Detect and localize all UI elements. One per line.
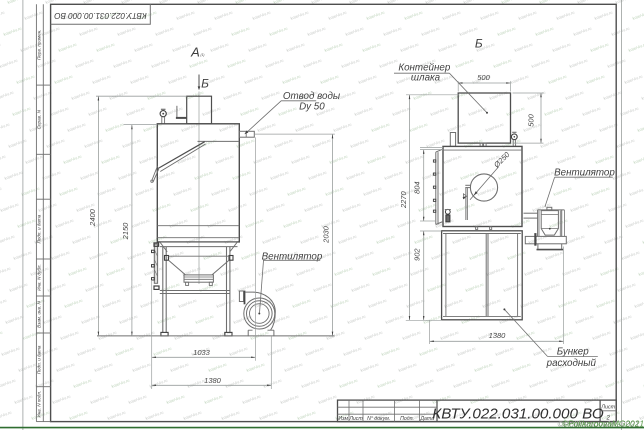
svg-text:шлака: шлака bbox=[411, 73, 441, 84]
svg-text:Справ. N: Справ. N bbox=[37, 109, 42, 129]
svg-text:Подп. и дата: Подп. и дата bbox=[37, 214, 42, 243]
svg-text:2030: 2030 bbox=[322, 225, 331, 244]
svg-text:Взам. инв. N: Взам. инв. N bbox=[37, 300, 42, 327]
svg-text:Бункер: Бункер bbox=[557, 347, 590, 358]
svg-text:Инв. N дубл.: Инв. N дубл. bbox=[37, 264, 42, 291]
svg-text:902: 902 bbox=[413, 248, 422, 261]
svg-text:©PolikarpovaMG2021: ©PolikarpovaMG2021 bbox=[562, 418, 644, 428]
svg-text:500: 500 bbox=[477, 73, 490, 82]
svg-text:Б: Б bbox=[475, 37, 483, 51]
svg-text:Dy 50: Dy 50 bbox=[299, 102, 325, 113]
svg-text:N° докум.: N° докум. bbox=[367, 416, 390, 422]
svg-text:1033: 1033 bbox=[193, 348, 211, 357]
svg-text:500: 500 bbox=[527, 113, 536, 126]
svg-text:804: 804 bbox=[413, 181, 422, 194]
svg-text:А: А bbox=[190, 44, 200, 59]
svg-text:Лист: Лист bbox=[600, 404, 615, 410]
svg-text:1380: 1380 bbox=[204, 376, 222, 385]
svg-text:Инв. N подл.: Инв. N подл. bbox=[37, 391, 42, 418]
svg-text:Б: Б bbox=[201, 77, 209, 91]
svg-text:1380: 1380 bbox=[489, 331, 507, 340]
svg-text:Перв. примен.: Перв. примен. bbox=[37, 29, 42, 60]
svg-text:Подп. и дата: Подп. и дата bbox=[37, 345, 42, 374]
svg-text:Лист: Лист bbox=[348, 416, 363, 422]
svg-text:КВТУ.022.031.00.000 ВО: КВТУ.022.031.00.000 ВО bbox=[54, 11, 147, 20]
svg-text:2270: 2270 bbox=[399, 191, 408, 210]
svg-text:Подп.: Подп. bbox=[400, 416, 414, 422]
svg-text:(1): (1) bbox=[201, 53, 205, 57]
svg-text:расходный: расходный bbox=[546, 358, 597, 369]
svg-text:2400: 2400 bbox=[88, 208, 97, 227]
svg-text:2150: 2150 bbox=[121, 222, 130, 241]
svg-text:Изм: Изм bbox=[338, 416, 348, 422]
